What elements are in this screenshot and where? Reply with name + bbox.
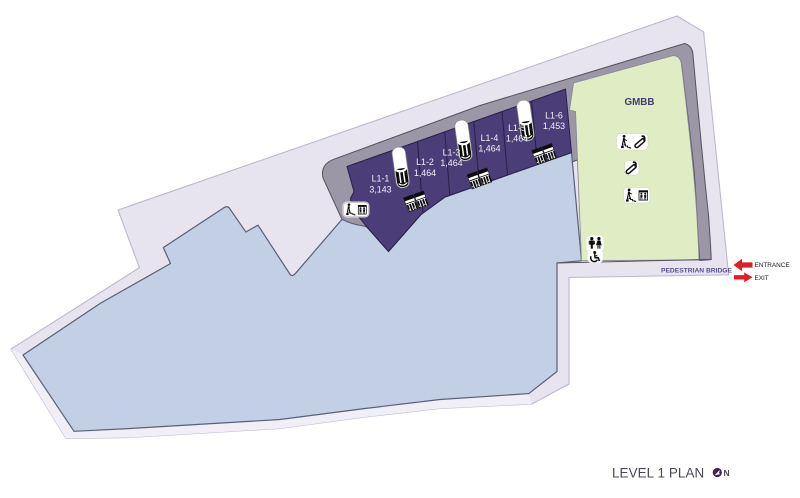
svg-text:1,464: 1,464 xyxy=(414,168,436,178)
svg-text:L1-5: L1-5 xyxy=(508,123,526,133)
svg-text:1,464: 1,464 xyxy=(440,158,462,168)
svg-text:L1-4: L1-4 xyxy=(481,133,499,143)
svg-text:LEVEL 1 PLAN: LEVEL 1 PLAN xyxy=(612,465,704,480)
svg-text:L1-6: L1-6 xyxy=(545,111,563,121)
svg-text:EXIT: EXIT xyxy=(755,275,769,282)
svg-text:N: N xyxy=(724,468,730,478)
svg-text:L1-2: L1-2 xyxy=(416,157,434,167)
svg-text:1,453: 1,453 xyxy=(543,121,565,131)
svg-text:ENTRANCE: ENTRANCE xyxy=(755,262,790,269)
svg-text:GMBB: GMBB xyxy=(625,97,655,108)
svg-text:1,464: 1,464 xyxy=(478,144,500,154)
svg-text:L1-1: L1-1 xyxy=(372,174,390,184)
svg-text:1,464: 1,464 xyxy=(506,134,528,144)
svg-text:L1-3: L1-3 xyxy=(443,148,461,158)
svg-text:PEDESTRIAN BRIDGE: PEDESTRIAN BRIDGE xyxy=(661,267,733,274)
svg-text:3,143: 3,143 xyxy=(369,185,391,195)
